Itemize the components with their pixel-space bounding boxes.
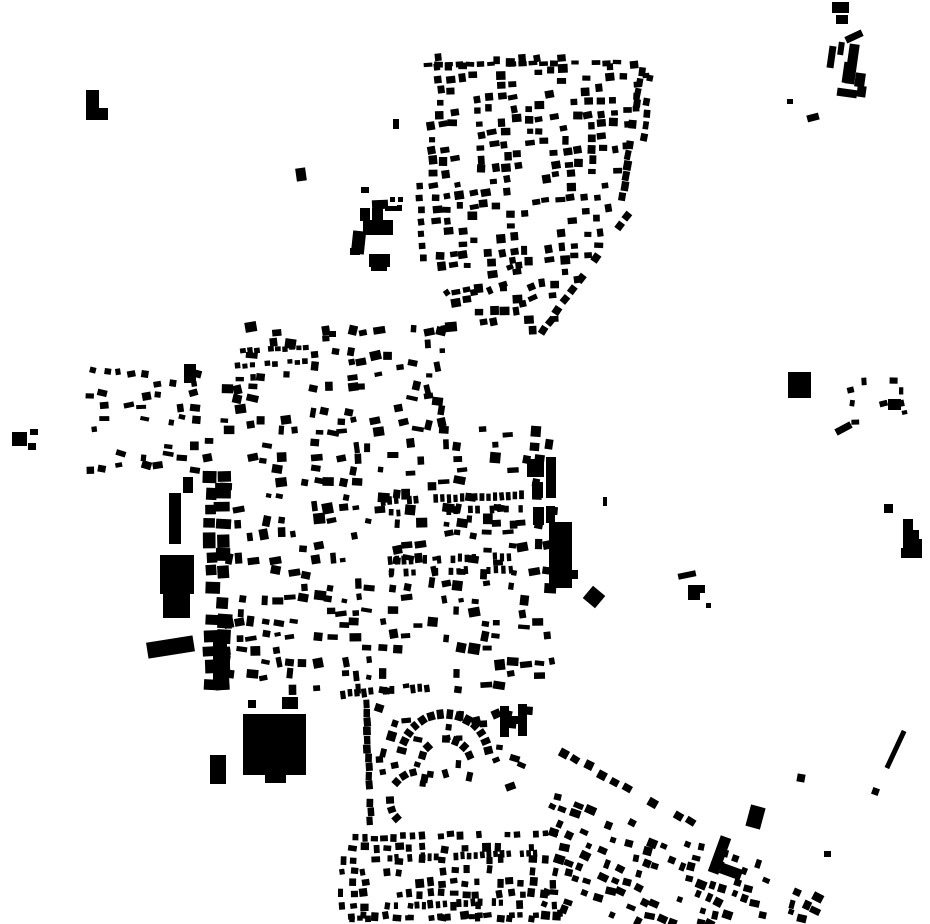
building-footprint [856, 85, 866, 97]
building-footprint [861, 378, 866, 386]
building-footprint [296, 345, 301, 350]
building-footprint [597, 97, 605, 104]
building-footprint [466, 493, 471, 501]
building-footprint [514, 162, 522, 170]
building-footprint [439, 867, 446, 875]
building-footprint [550, 889, 559, 895]
building-footprint [466, 515, 472, 522]
building-footprint [506, 850, 511, 857]
building-footprint [169, 493, 181, 544]
building-footprint [557, 78, 566, 84]
building-footprint [154, 391, 161, 398]
building-footprint [464, 263, 471, 268]
building-footprint [456, 518, 468, 528]
building-footprint [618, 192, 626, 201]
building-footprint [361, 842, 369, 850]
building-footprint [216, 646, 231, 656]
building-footprint [396, 892, 403, 898]
building-footprint [593, 215, 600, 222]
building-footprint [386, 796, 394, 804]
building-footprint [507, 657, 519, 666]
building-footprint [421, 852, 426, 860]
building-footprint [359, 888, 368, 897]
building-footprint [437, 100, 444, 106]
building-footprint [99, 416, 109, 421]
building-footprint [418, 206, 425, 213]
building-footprint [343, 494, 350, 501]
building-footprint [542, 174, 552, 184]
building-footprint [283, 371, 289, 378]
building-footprint [508, 566, 513, 574]
building-footprint [557, 54, 566, 62]
building-footprint [339, 503, 349, 511]
building-footprint [282, 697, 298, 709]
building-footprint [477, 899, 482, 906]
building-footprint [264, 360, 270, 366]
building-footprint [532, 618, 543, 626]
building-footprint [416, 183, 423, 190]
building-footprint [479, 493, 484, 501]
building-footprint [546, 506, 558, 515]
building-footprint [535, 128, 542, 134]
building-footprint [487, 270, 498, 279]
building-footprint [508, 888, 516, 896]
building-footprint [501, 163, 511, 172]
building-footprint [455, 760, 461, 768]
building-footprint [525, 706, 533, 715]
building-footprint [342, 670, 349, 676]
building-footprint [518, 505, 522, 512]
building-footprint [464, 900, 469, 907]
building-footprint [517, 912, 522, 918]
building-footprint [339, 869, 345, 875]
building-footprint [366, 799, 373, 808]
building-footprint [302, 358, 308, 364]
building-footprint [388, 606, 398, 614]
building-footprint [450, 891, 459, 896]
building-footprint [456, 61, 464, 67]
building-footprint [497, 879, 503, 888]
building-footprint [298, 659, 307, 667]
building-footprint [440, 846, 449, 854]
building-footprint [446, 507, 451, 515]
building-footprint [473, 96, 481, 104]
building-footprint [532, 478, 541, 487]
building-footprint [438, 881, 446, 888]
building-footprint [495, 890, 503, 899]
building-footprint [836, 15, 848, 24]
building-footprint [480, 720, 488, 727]
building-footprint [435, 111, 444, 119]
building-footprint [313, 632, 323, 641]
building-footprint [301, 584, 308, 592]
building-footprint [458, 598, 464, 603]
building-footprint [698, 585, 705, 593]
building-footprint [312, 657, 324, 669]
building-footprint [497, 504, 502, 512]
building-footprint [366, 772, 372, 781]
building-footprint [361, 187, 369, 193]
building-footprint [468, 71, 477, 78]
building-footprint [311, 454, 323, 462]
building-footprint [269, 338, 278, 347]
building-footprint [217, 614, 233, 629]
building-footprint [533, 831, 539, 838]
building-footprint [210, 755, 226, 784]
building-footprint [378, 644, 387, 651]
building-footprint [379, 668, 386, 679]
building-footprint [512, 306, 519, 315]
building-footprint [573, 145, 582, 154]
building-footprint [350, 903, 357, 909]
building-footprint [443, 439, 449, 449]
building-footprint [379, 769, 386, 776]
building-footprint [427, 771, 434, 778]
building-footprint [493, 492, 497, 500]
building-footprint [525, 116, 533, 124]
building-footprint [287, 359, 292, 364]
building-footprint [450, 251, 458, 258]
figure-ground-map [0, 0, 930, 924]
building-footprint [236, 377, 244, 382]
building-footprint [520, 661, 533, 669]
building-footprint [643, 110, 650, 118]
building-footprint [534, 519, 544, 530]
building-footprint [633, 99, 641, 108]
building-footprint [517, 880, 524, 887]
building-footprint [203, 532, 216, 548]
building-footprint [395, 869, 402, 877]
building-footprint [519, 490, 524, 499]
building-footprint [104, 368, 111, 375]
building-footprint [447, 494, 452, 503]
building-footprint [439, 157, 447, 166]
building-footprint [581, 87, 590, 96]
building-footprint [418, 231, 425, 238]
building-footprint [152, 461, 163, 469]
building-footprint [445, 914, 451, 921]
building-footprint [513, 492, 518, 500]
building-footprint [524, 257, 532, 266]
building-footprint [321, 325, 330, 336]
building-footprint [476, 831, 482, 838]
building-footprint [510, 232, 518, 241]
building-footprint [549, 150, 557, 156]
building-footprint [394, 854, 399, 861]
building-footprint [524, 315, 534, 324]
building-footprint [480, 682, 492, 688]
building-footprint [558, 242, 565, 251]
building-footprint [365, 780, 373, 789]
building-footprint [91, 426, 97, 432]
building-footprint [542, 540, 553, 550]
building-footprint [532, 199, 541, 206]
building-footprint [487, 259, 496, 267]
building-footprint [404, 504, 415, 515]
building-footprint [441, 170, 450, 179]
building-footprint [205, 582, 220, 594]
building-footprint [443, 193, 450, 200]
building-footprint [500, 850, 505, 858]
building-footprint [498, 118, 506, 127]
building-footprint [489, 452, 501, 464]
building-footprint [406, 438, 415, 448]
building-footprint [445, 724, 452, 731]
building-footprint [550, 880, 556, 889]
building-footprint [487, 62, 495, 67]
building-footprint [552, 171, 560, 177]
building-footprint [247, 557, 259, 565]
building-footprint [547, 67, 554, 74]
building-footprint [424, 684, 430, 692]
building-footprint [901, 548, 922, 558]
building-footprint [366, 763, 373, 771]
building-footprint [483, 580, 491, 586]
building-footprint [413, 623, 422, 628]
building-footprint [353, 671, 360, 682]
building-footprint [470, 289, 478, 297]
building-footprint [535, 539, 542, 549]
building-footprint [278, 426, 284, 435]
building-footprint [444, 227, 454, 235]
building-footprint [190, 442, 199, 451]
building-footprint [438, 833, 445, 839]
building-footprint [356, 593, 362, 600]
building-footprint [401, 555, 406, 564]
building-footprint [452, 580, 463, 591]
building-footprint [413, 496, 419, 504]
building-footprint [486, 850, 491, 858]
building-footprint [357, 916, 363, 921]
building-footprint [400, 832, 406, 839]
building-footprint [544, 583, 556, 594]
building-footprint [395, 842, 404, 850]
building-footprint [516, 900, 523, 909]
building-footprint [136, 405, 146, 409]
building-footprint [544, 244, 553, 253]
building-footprint [549, 292, 557, 298]
building-footprint [514, 831, 521, 838]
building-footprint [482, 530, 492, 535]
building-footprint [453, 506, 458, 514]
building-footprint [250, 362, 255, 367]
building-footprint [476, 121, 483, 126]
building-footprint [459, 242, 468, 248]
building-footprint [613, 60, 622, 65]
building-footprint [363, 744, 371, 753]
building-footprint [411, 325, 417, 333]
building-footprint [706, 603, 711, 608]
building-footprint [436, 709, 444, 719]
building-footprint [364, 443, 370, 452]
building-footprint [392, 914, 401, 921]
building-footprint [367, 807, 374, 816]
building-footprint [331, 348, 339, 355]
building-footprint [458, 553, 462, 561]
building-footprint [361, 879, 369, 886]
building-footprint [588, 122, 595, 130]
building-footprint [347, 347, 355, 356]
building-footprint [352, 834, 358, 840]
building-footprint [550, 60, 558, 66]
building-footprint [479, 199, 488, 208]
building-footprint [507, 223, 515, 228]
building-footprint [565, 162, 574, 168]
building-footprint [543, 830, 549, 836]
building-footprint [423, 555, 427, 564]
building-footprint [492, 442, 498, 448]
building-footprint [322, 336, 330, 342]
building-footprint [365, 916, 371, 923]
building-footprint [235, 362, 241, 368]
building-footprint [415, 879, 425, 889]
building-footprint [429, 170, 438, 177]
building-footprint [588, 134, 596, 142]
building-footprint [475, 506, 480, 514]
building-footprint [428, 482, 437, 490]
building-footprint [594, 242, 603, 248]
building-footprint [486, 865, 492, 874]
building-footprint [257, 416, 265, 424]
building-footprint [529, 867, 535, 875]
building-footprint [474, 107, 480, 113]
building-footprint [529, 442, 539, 451]
building-footprint [443, 634, 449, 642]
building-footprint [533, 850, 538, 857]
building-footprint [141, 370, 149, 378]
building-footprint [539, 61, 548, 66]
building-footprint [341, 856, 347, 865]
building-footprint [316, 430, 324, 435]
building-footprint [609, 97, 616, 104]
building-footprint [246, 615, 255, 626]
building-footprint [489, 505, 494, 513]
building-footprint [376, 756, 384, 763]
building-footprint [568, 570, 578, 579]
building-footprint [86, 466, 94, 474]
building-footprint [371, 912, 379, 921]
building-footprint [380, 835, 388, 841]
building-footprint [439, 426, 449, 434]
building-footprint [446, 709, 454, 719]
building-footprint [440, 348, 446, 353]
building-footprint [405, 915, 411, 920]
building-footprint [623, 107, 632, 113]
building-footprint [508, 61, 517, 67]
building-footprint [461, 881, 469, 888]
building-footprint [390, 197, 395, 202]
building-footprint [483, 548, 491, 553]
building-footprint [453, 669, 459, 678]
building-footprint [494, 659, 506, 671]
building-footprint [389, 509, 394, 516]
building-footprint [638, 67, 646, 77]
building-footprint [509, 912, 515, 918]
building-footprint [455, 642, 466, 654]
building-footprint [407, 496, 412, 504]
building-footprint [890, 377, 898, 383]
building-footprint [546, 457, 556, 498]
building-footprint [303, 345, 309, 351]
building-footprint [437, 85, 445, 94]
building-footprint [832, 2, 849, 13]
building-footprint [469, 532, 477, 539]
building-footprint [160, 555, 194, 594]
building-footprint [451, 556, 456, 564]
building-footprint [374, 845, 380, 853]
building-footprint [620, 181, 629, 192]
building-footprint [464, 566, 469, 574]
building-footprint [380, 618, 387, 625]
building-footprint [383, 352, 392, 360]
building-footprint [498, 92, 507, 99]
building-footprint [443, 522, 449, 527]
building-footprint [571, 60, 578, 64]
building-footprint [574, 159, 583, 167]
building-footprint [530, 426, 541, 438]
building-footprint [582, 208, 590, 215]
building-footprint [347, 689, 352, 697]
building-footprint [476, 145, 484, 151]
building-footprint [432, 205, 442, 213]
building-footprint [30, 429, 38, 435]
building-footprint [520, 892, 526, 898]
building-footprint [449, 568, 454, 575]
building-footprint [234, 404, 246, 414]
building-footprint [371, 836, 378, 842]
building-footprint [605, 72, 615, 81]
building-footprint [851, 420, 859, 425]
building-footprint [599, 145, 607, 151]
building-footprint [403, 683, 410, 688]
building-footprint [217, 629, 231, 644]
building-footprint [363, 700, 369, 709]
building-footprint [311, 554, 321, 564]
building-footprint [570, 253, 578, 259]
building-footprint [352, 478, 363, 486]
building-footprint [407, 854, 412, 862]
building-footprint [493, 620, 500, 625]
building-footprint [259, 458, 267, 464]
building-footprint [418, 831, 425, 839]
building-footprint [214, 502, 230, 512]
building-footprint [348, 358, 355, 365]
building-footprint [434, 76, 442, 84]
building-footprint [884, 504, 893, 513]
building-footprint [601, 182, 608, 188]
building-footprint [177, 403, 185, 412]
building-footprint [462, 891, 470, 898]
building-footprint [323, 595, 332, 603]
building-footprint [141, 391, 151, 401]
building-footprint [366, 675, 372, 681]
building-footprint [362, 645, 371, 651]
building-footprint [493, 851, 498, 858]
building-footprint [280, 415, 291, 425]
building-footprint [355, 578, 362, 589]
building-footprint [552, 902, 557, 910]
building-footprint [330, 552, 336, 563]
building-footprint [457, 202, 463, 209]
building-footprint [499, 492, 504, 501]
building-footprint [470, 238, 477, 244]
building-footprint [501, 566, 506, 574]
building-footprint [277, 452, 287, 462]
building-footprint [432, 194, 440, 201]
building-footprint [496, 744, 503, 750]
building-footprint [552, 829, 558, 836]
building-footprint [401, 633, 411, 639]
